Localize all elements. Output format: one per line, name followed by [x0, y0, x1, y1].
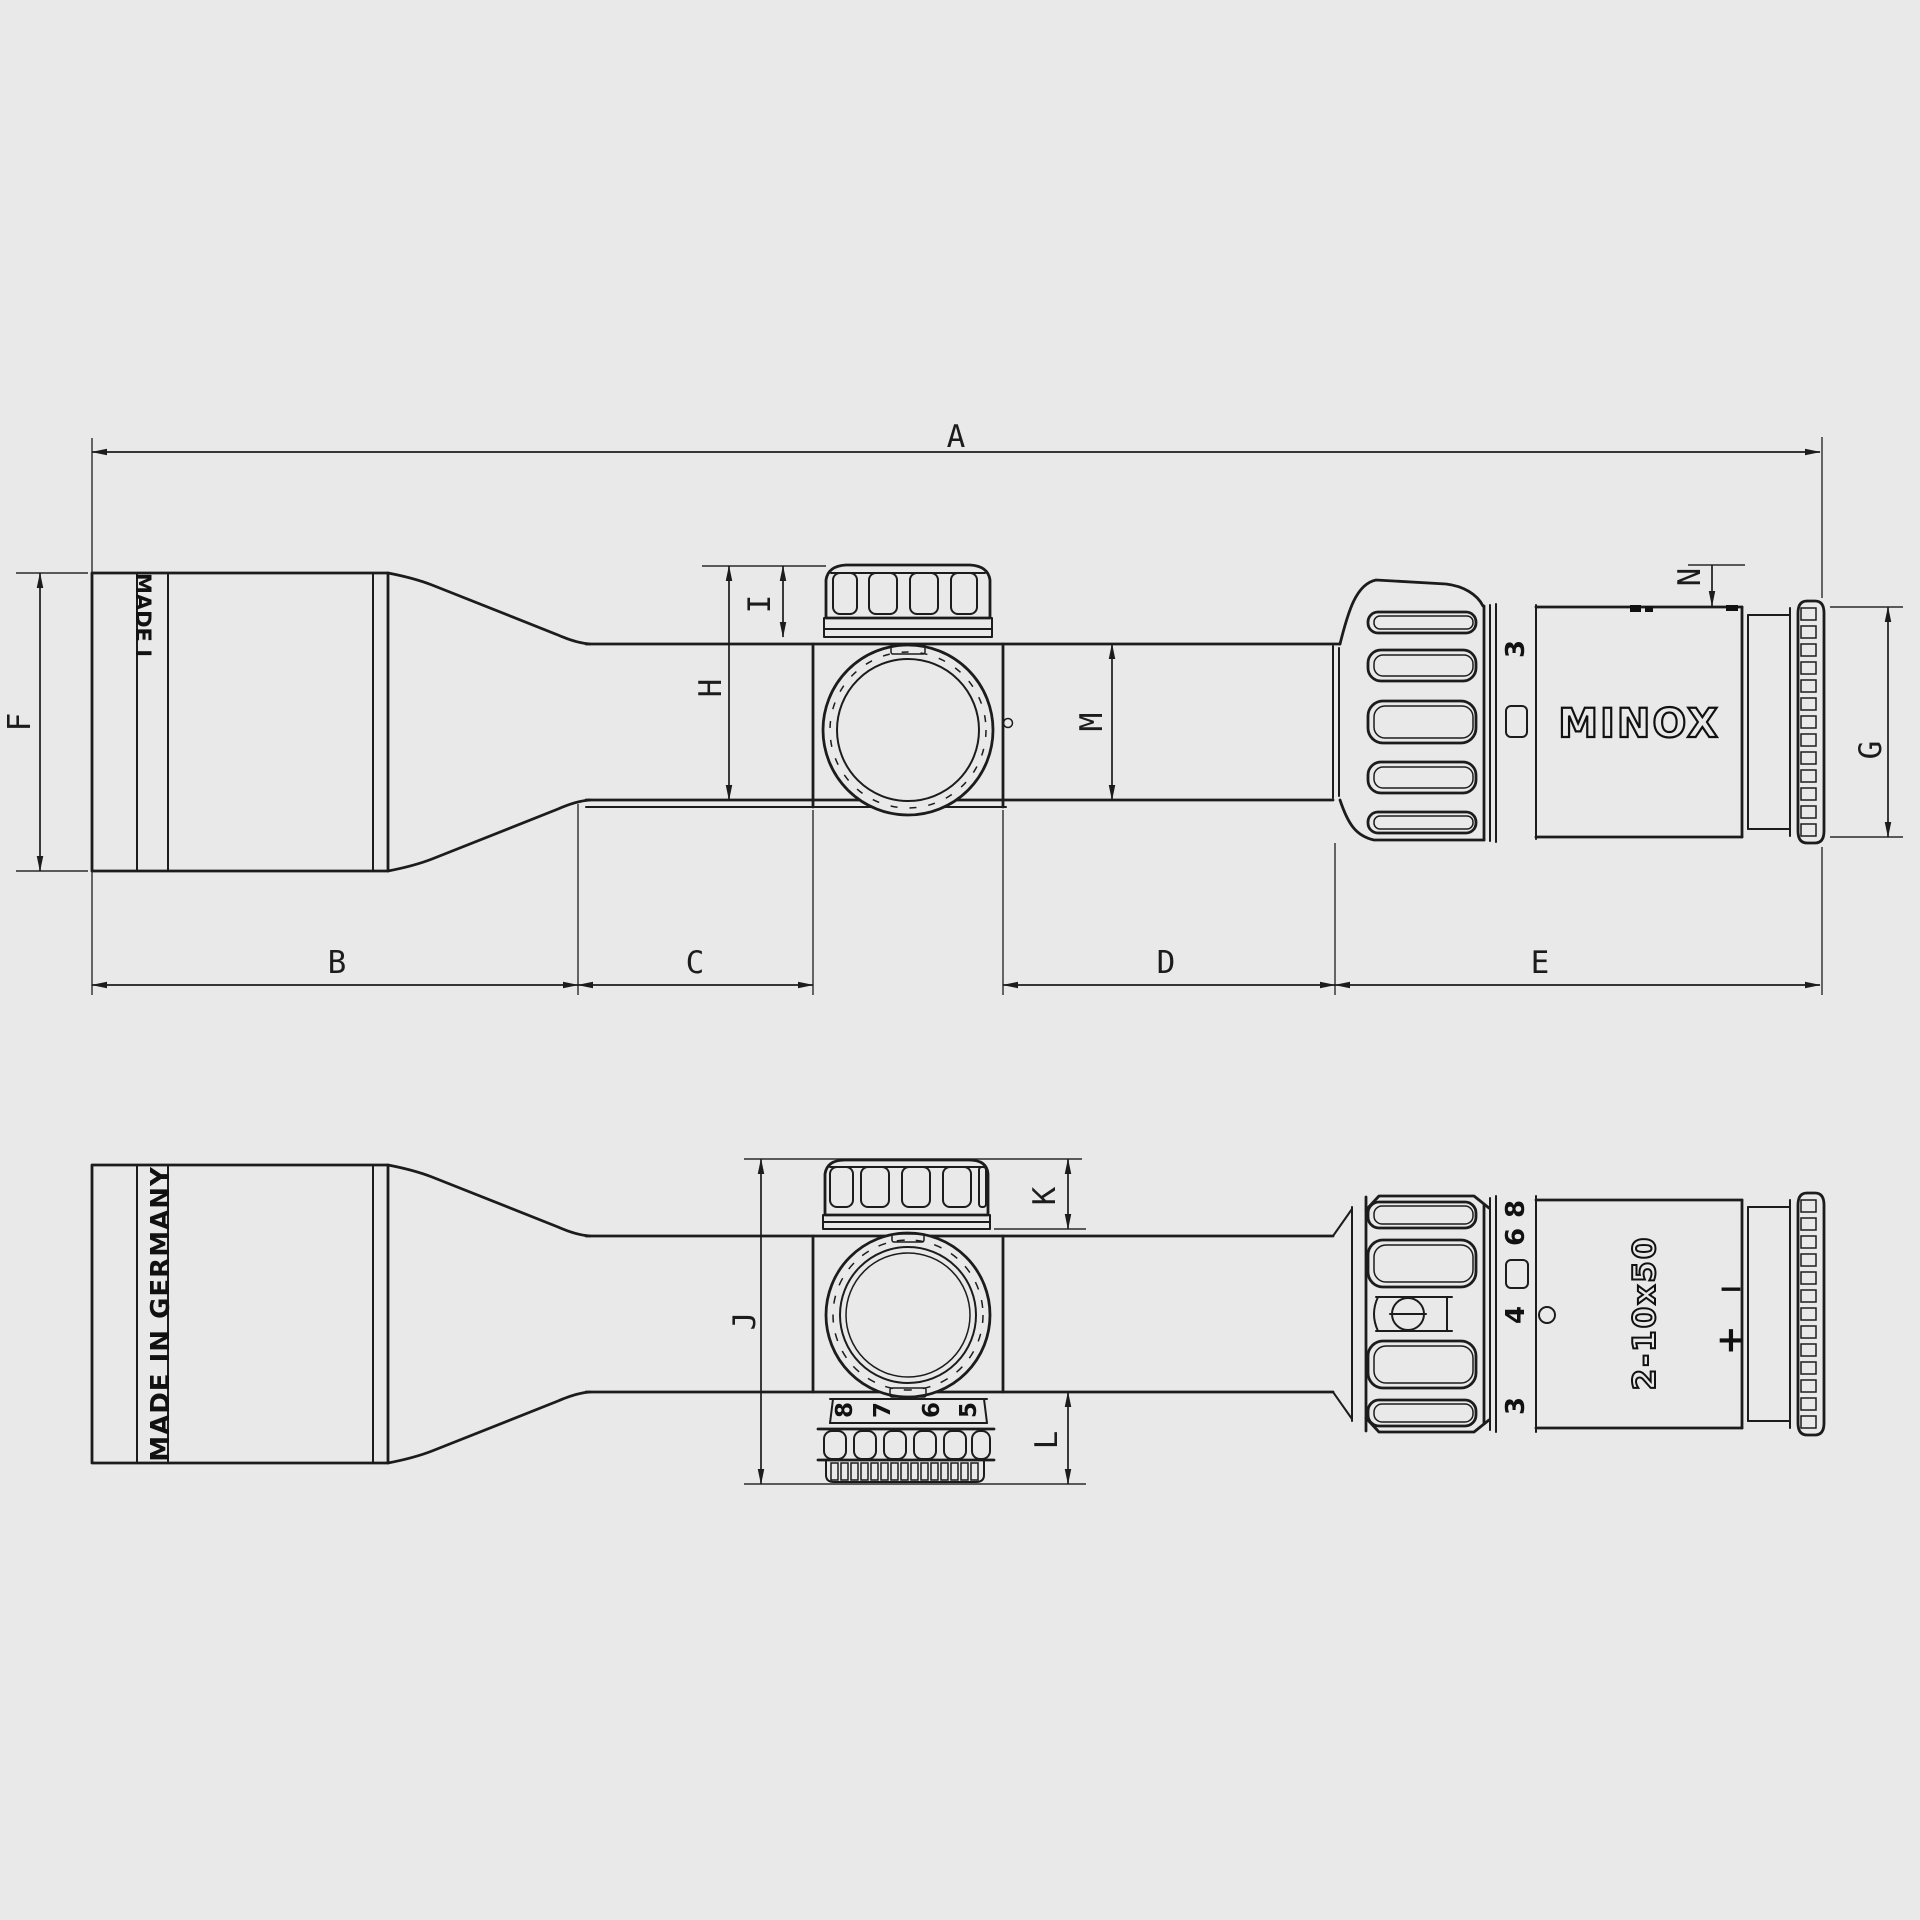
- elevation-turret-ring: [823, 645, 993, 815]
- model-text: 2-10x50: [1627, 1236, 1663, 1391]
- elevation-cap: [824, 565, 992, 637]
- dim-label-N: N: [1672, 568, 1708, 587]
- windage-comb-teeth: [831, 1463, 978, 1480]
- dim-label-I: I: [742, 595, 778, 614]
- mag-scale-mark-3: [1726, 605, 1738, 611]
- dim-label-D: D: [1157, 945, 1176, 981]
- windage-knurl: [824, 1431, 990, 1459]
- mag-number-3-side: 3: [1501, 640, 1531, 658]
- eyepiece-body-top: 2-10x50 − +: [1536, 1200, 1746, 1428]
- dim-label-G: G: [1853, 741, 1889, 760]
- dim-label-K: K: [1027, 1186, 1063, 1205]
- diopter-section-top: [1748, 1193, 1824, 1435]
- minox-logo-text: MINOX: [1558, 701, 1720, 747]
- windage-number-8: 8: [832, 1402, 858, 1418]
- diopter-knurl-teeth-side: [1801, 608, 1816, 836]
- elevation-cap-top: [823, 1160, 990, 1229]
- dim-label-A: A: [947, 419, 966, 455]
- mag-index-band-side: 3: [1501, 605, 1536, 839]
- taper-bottom: [388, 800, 590, 871]
- dim-label-C: C: [686, 945, 705, 981]
- made-in-band-text-top: MADE IN GERMANY: [146, 1166, 176, 1462]
- dim-label-E: E: [1531, 945, 1550, 981]
- dim-label-J: J: [727, 1312, 763, 1331]
- mag-number-3: 3: [1501, 1397, 1531, 1415]
- mag-scale-mark-2: [1645, 606, 1653, 612]
- eyepiece-body-side: MINOX: [1536, 605, 1742, 837]
- power-ring-side: [1333, 580, 1496, 842]
- power-ring-screw-band: [1374, 1297, 1452, 1331]
- dim-label-H: H: [693, 679, 729, 698]
- dim-label-L: L: [1029, 1431, 1065, 1450]
- mag-number-4: 4: [1501, 1306, 1531, 1324]
- tube-index-dot: [1004, 719, 1013, 728]
- mag-scale-mark-1: [1630, 605, 1641, 612]
- top-view: 8 7 6 5: [92, 1160, 1824, 1482]
- mag-number-6: 6: [1501, 1228, 1531, 1246]
- mag-index-square-side: [1506, 706, 1527, 737]
- power-ring-top: [1333, 1196, 1496, 1432]
- windage-number-7: 7: [870, 1402, 896, 1418]
- dim-label-F: F: [2, 713, 38, 732]
- turret-ring-top: [826, 1233, 990, 1397]
- mag-index-square-top: [1506, 1260, 1528, 1288]
- dim-label-B: B: [328, 945, 347, 981]
- taper-top: [388, 573, 590, 644]
- windage-number-6: 6: [919, 1402, 945, 1418]
- index-circle-mark: [1539, 1307, 1555, 1323]
- diopter-section-side: [1748, 601, 1824, 843]
- mag-index-band-top: 8 6 4 3: [1501, 1196, 1536, 1432]
- power-ring-grooves: [1368, 612, 1476, 833]
- windage-number-5: 5: [956, 1402, 982, 1418]
- diopter-plus-mark: +: [1716, 1320, 1746, 1361]
- mag-number-8: 8: [1501, 1200, 1531, 1218]
- diopter-minus-mark: −: [1718, 1272, 1743, 1307]
- side-view: 3 MINOX: [92, 565, 1824, 871]
- made-in-band-text-side: MADE I: [131, 573, 155, 657]
- windage-turret: 8 7 6 5: [818, 1399, 994, 1482]
- diopter-knurl-teeth-top: [1801, 1200, 1816, 1428]
- technical-drawing-page: 3 MINOX: [0, 0, 1920, 1920]
- elevation-cap-knurl-top: [830, 1167, 986, 1207]
- elevation-cap-knurl: [833, 573, 977, 614]
- scope-drawing-canvas: 3 MINOX: [0, 0, 1920, 1920]
- dim-label-M: M: [1074, 713, 1110, 732]
